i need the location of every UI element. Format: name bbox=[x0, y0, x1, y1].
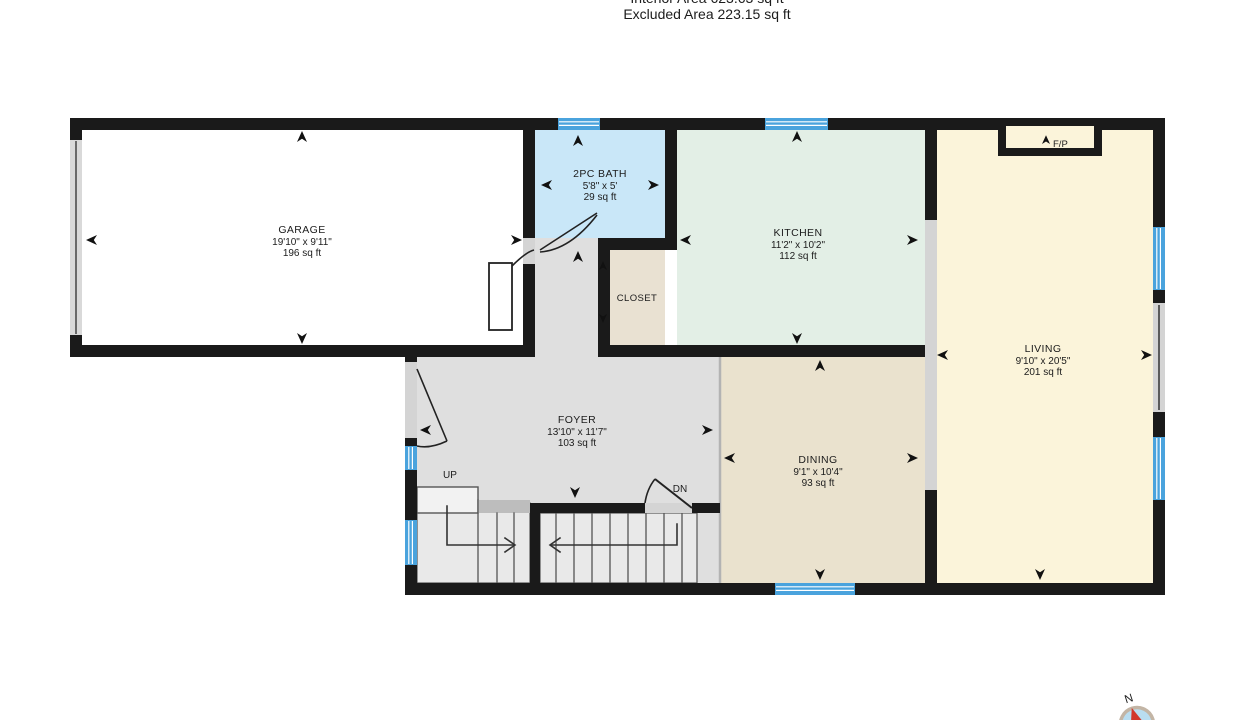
svg-text:19'10" x 9'11": 19'10" x 9'11" bbox=[272, 237, 332, 248]
stairs-step bbox=[478, 500, 530, 513]
svg-text:FOYER: FOYER bbox=[558, 414, 596, 426]
svg-text:11'2" x 10'2": 11'2" x 10'2" bbox=[771, 240, 826, 251]
bath-window bbox=[558, 118, 600, 130]
svg-text:9'10" x 20'5": 9'10" x 20'5" bbox=[1016, 356, 1071, 367]
living-window-upper bbox=[1153, 227, 1165, 290]
fireplace: F/P bbox=[998, 118, 1102, 156]
svg-text:201 sq ft: 201 sq ft bbox=[1024, 367, 1063, 378]
svg-text:2PC BATH: 2PC BATH bbox=[573, 168, 627, 180]
svg-text:DINING: DINING bbox=[798, 454, 837, 466]
svg-text:196 sq ft: 196 sq ft bbox=[283, 248, 322, 259]
svg-text:93 sq ft: 93 sq ft bbox=[802, 478, 835, 489]
svg-text:5'8" x 5': 5'8" x 5' bbox=[583, 181, 618, 192]
closet-label: CLOSET bbox=[617, 293, 657, 304]
svg-text:KITCHEN: KITCHEN bbox=[774, 227, 823, 239]
stair-window-upper bbox=[405, 446, 417, 470]
compass: N bbox=[1111, 688, 1158, 720]
compass-north-label: N bbox=[1123, 692, 1135, 706]
living-opening bbox=[925, 220, 937, 490]
svg-text:29 sq ft: 29 sq ft bbox=[584, 192, 617, 203]
stair-window-lower bbox=[405, 520, 417, 565]
garage-door-leaf bbox=[489, 263, 512, 330]
dining-window bbox=[775, 583, 855, 595]
svg-text:103 sq ft: 103 sq ft bbox=[558, 438, 597, 449]
room-foyer-vestibule bbox=[535, 238, 598, 357]
svg-text:LIVING: LIVING bbox=[1025, 343, 1062, 355]
excluded-area-text: Excluded Area 223.15 sq ft bbox=[623, 6, 790, 22]
svg-text:112 sq ft: 112 sq ft bbox=[779, 251, 817, 262]
garage-vehicle-door bbox=[70, 140, 82, 335]
stairs-up-label: UP bbox=[443, 470, 457, 481]
stair-door-opening bbox=[645, 503, 692, 513]
floor-plan: Interior Area 623.63 sq ft Excluded Area… bbox=[0, 0, 1240, 720]
front-door-opening bbox=[405, 362, 417, 438]
floorplan-page: Interior Area 623.63 sq ft Excluded Area… bbox=[0, 0, 1240, 720]
stairs-down-flight bbox=[540, 513, 697, 583]
svg-text:9'1" x 10'4": 9'1" x 10'4" bbox=[793, 467, 843, 478]
living-window-lower bbox=[1153, 437, 1165, 500]
stairs-down-label: DN bbox=[673, 484, 687, 495]
kitchen-window bbox=[765, 118, 828, 130]
svg-text:GARAGE: GARAGE bbox=[278, 224, 325, 236]
fireplace-label: F/P bbox=[1053, 139, 1068, 150]
svg-text:13'10" x 11'7": 13'10" x 11'7" bbox=[547, 427, 607, 438]
